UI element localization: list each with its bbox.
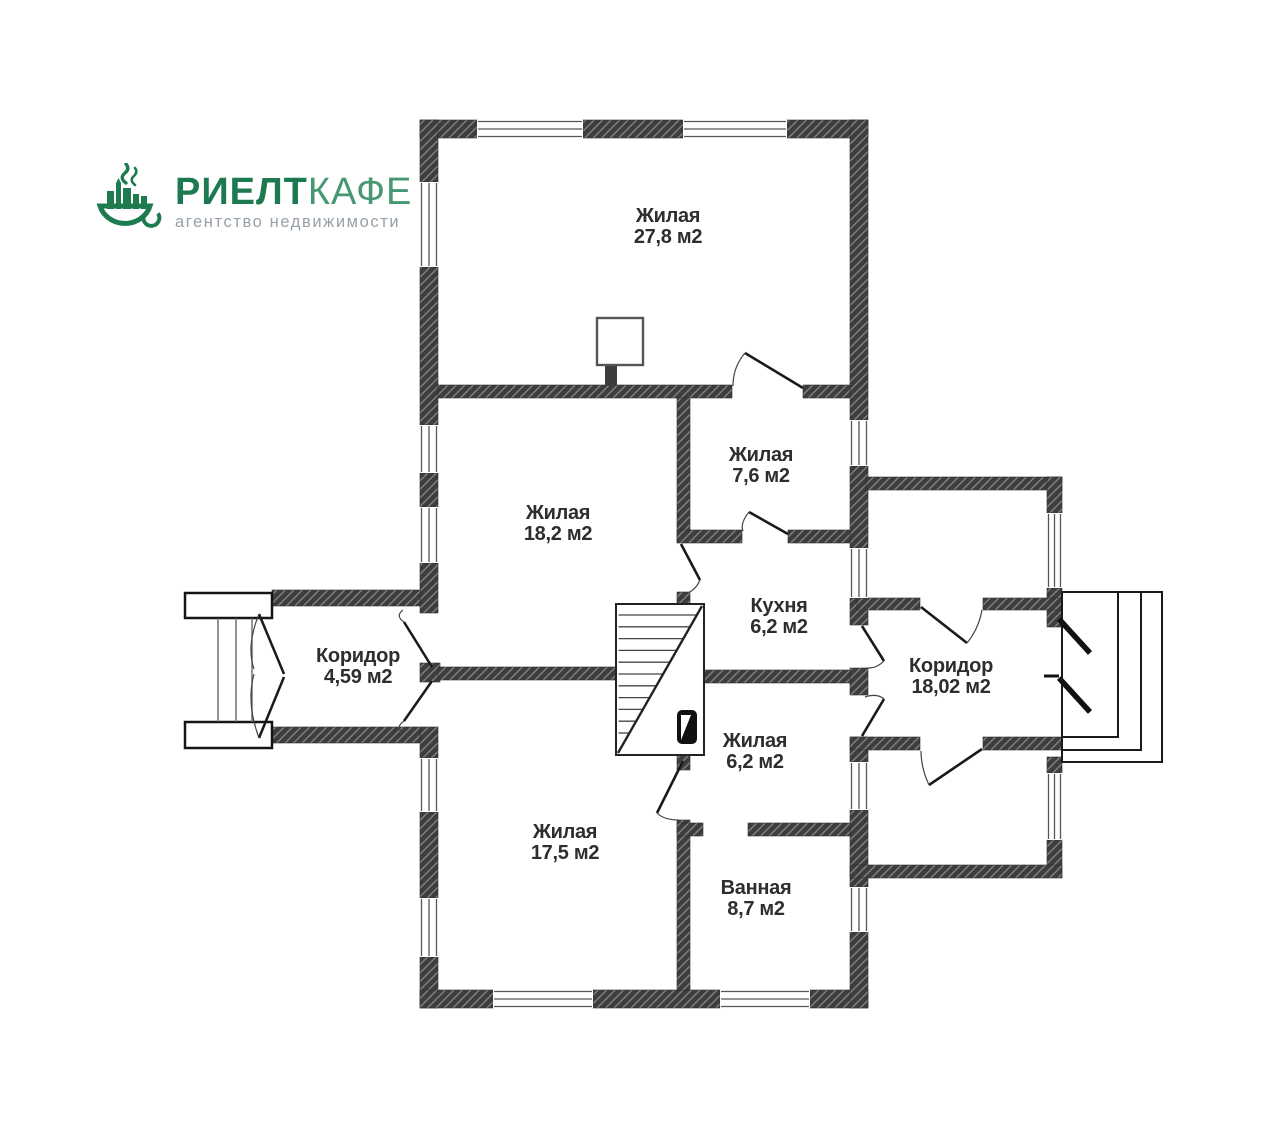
room-name: Коридор (909, 656, 993, 677)
room-area: 6,2 м2 (750, 617, 807, 638)
room-name: Жилая (531, 822, 599, 843)
wall-segment (677, 398, 690, 542)
door-swing (733, 353, 803, 388)
brand-primary: РИЕЛТ (175, 171, 308, 213)
walls-layer (272, 120, 1062, 1008)
door-leaf (681, 544, 700, 580)
window-symbol (493, 990, 593, 1008)
window-symbol (683, 120, 787, 138)
door-leaf (404, 622, 432, 667)
window-symbol (850, 887, 868, 932)
door-arc (657, 813, 679, 820)
window-symbol (420, 898, 438, 957)
wall-segment (850, 865, 1062, 878)
wall-segment (420, 812, 438, 898)
wall-segment (420, 563, 438, 613)
room-label-living-27-8: Жилая 27,8 м2 (634, 206, 702, 248)
door-arc (742, 512, 749, 531)
wall-segment (803, 385, 850, 398)
wall-segment (1047, 757, 1062, 773)
wall-segment (850, 668, 868, 695)
wall-segment (677, 820, 690, 990)
double-door-porch (251, 614, 284, 738)
brand-name: РИЕЛТКАФЕ (175, 172, 412, 212)
door-leaf (259, 614, 284, 674)
window-symbol (850, 762, 868, 810)
wall-segment (583, 120, 683, 138)
door-arc (967, 610, 982, 643)
door-leaf (862, 699, 884, 736)
entrance-steps (1062, 592, 1162, 762)
room-area: 18,2 м2 (524, 524, 592, 545)
door-arc (865, 695, 884, 699)
wall-segment (788, 530, 850, 543)
wall-segment (677, 530, 742, 543)
room-area: 17,5 м2 (531, 843, 599, 864)
entrance-door-leaf (1059, 619, 1090, 653)
wall-segment (983, 598, 1062, 610)
door-leaf (745, 353, 803, 388)
door-swing (862, 626, 884, 668)
window-symbol (1047, 513, 1062, 588)
entrance-door (1044, 619, 1090, 712)
door-leaf (921, 607, 967, 643)
wall-segment (850, 120, 868, 420)
entrance-step (1062, 592, 1118, 737)
door-swing (921, 607, 982, 643)
door-arc (733, 353, 745, 386)
room-label-living-17-5: Жилая 17,5 м2 (531, 822, 599, 864)
doors-layer (657, 353, 982, 820)
door-leaf (929, 749, 982, 785)
wall-segment (866, 477, 1062, 490)
wall-segment (748, 823, 850, 836)
wall-segment (420, 473, 438, 507)
room-name: Жилая (729, 445, 793, 466)
wall-segment (420, 120, 438, 182)
brand-secondary: КАФЕ (308, 171, 412, 213)
wall-segment (272, 590, 420, 606)
door-arc (921, 751, 929, 785)
room-name: Коридор (316, 646, 400, 667)
wall-segment (438, 385, 732, 398)
window-symbol (1047, 773, 1062, 840)
wall-segment (420, 990, 493, 1008)
room-name: Жилая (524, 503, 592, 524)
room-area: 6,2 м2 (723, 752, 787, 773)
room-label-living-7-6: Жилая 7,6 м2 (729, 445, 793, 487)
wall-segment (857, 598, 920, 610)
window-symbol (720, 990, 810, 1008)
room-area: 27,8 м2 (634, 227, 702, 248)
room-area: 7,6 м2 (729, 466, 793, 487)
window-symbol (420, 758, 438, 812)
wall-segment (593, 990, 720, 1008)
wall-segment (983, 737, 1062, 750)
room-label-corridor-small: Коридор 4,59 м2 (316, 646, 400, 688)
wall-segment (420, 267, 438, 425)
door-swing (921, 749, 982, 785)
door-leaf (749, 512, 788, 534)
room-name: Кухня (750, 596, 807, 617)
entrance-door-leaf (1059, 678, 1090, 712)
room-label-corridor-large: Коридор 18,02 м2 (909, 656, 993, 698)
door-swing (657, 761, 683, 820)
room-label-kitchen: Кухня 6,2 м2 (750, 596, 807, 638)
logo-cup-icon (95, 163, 163, 237)
door-arc (399, 610, 404, 622)
wall-segment (1047, 477, 1062, 513)
wall-segment (420, 727, 438, 758)
window-symbol (850, 548, 868, 598)
room-area: 4,59 м2 (316, 667, 400, 688)
agency-logo: РИЕЛТКАФЕ агентство недвижимости (95, 163, 412, 237)
brand-tagline: агентство недвижимости (175, 213, 412, 232)
door-leaf (862, 626, 884, 661)
door-leaf (404, 681, 432, 721)
wall-segment (850, 737, 920, 750)
furnace-box (597, 318, 643, 365)
window-symbol (420, 182, 438, 267)
window-symbol (477, 120, 583, 138)
door-swing (862, 695, 884, 736)
room-name: Жилая (723, 731, 787, 752)
wall-segment (272, 727, 420, 743)
window-symbol (420, 507, 438, 563)
room-area: 8,7 м2 (721, 899, 792, 920)
room-area: 18,02 м2 (909, 677, 993, 698)
furnace (597, 318, 643, 386)
entrance-step (1062, 592, 1141, 750)
wall-segment (438, 667, 616, 680)
room-label-bathroom: Ванная 8,7 м2 (721, 878, 792, 920)
room-name: Ванная (721, 878, 792, 899)
door-arc (866, 661, 884, 668)
window-symbol (850, 420, 868, 466)
door-swing (681, 544, 700, 595)
window-symbol (420, 425, 438, 473)
door-swing (742, 512, 788, 534)
wall-segment (677, 823, 703, 836)
room-label-living-6-2: Жилая 6,2 м2 (723, 731, 787, 773)
wall-segment (850, 932, 868, 1008)
room-name: Жилая (634, 206, 702, 227)
staircase (616, 604, 704, 755)
room-label-living-18-2: Жилая 18,2 м2 (524, 503, 592, 545)
wall-segment (704, 670, 850, 683)
furnace-stub (605, 365, 617, 386)
door-leaf (657, 761, 683, 813)
wall-segment (850, 466, 868, 548)
